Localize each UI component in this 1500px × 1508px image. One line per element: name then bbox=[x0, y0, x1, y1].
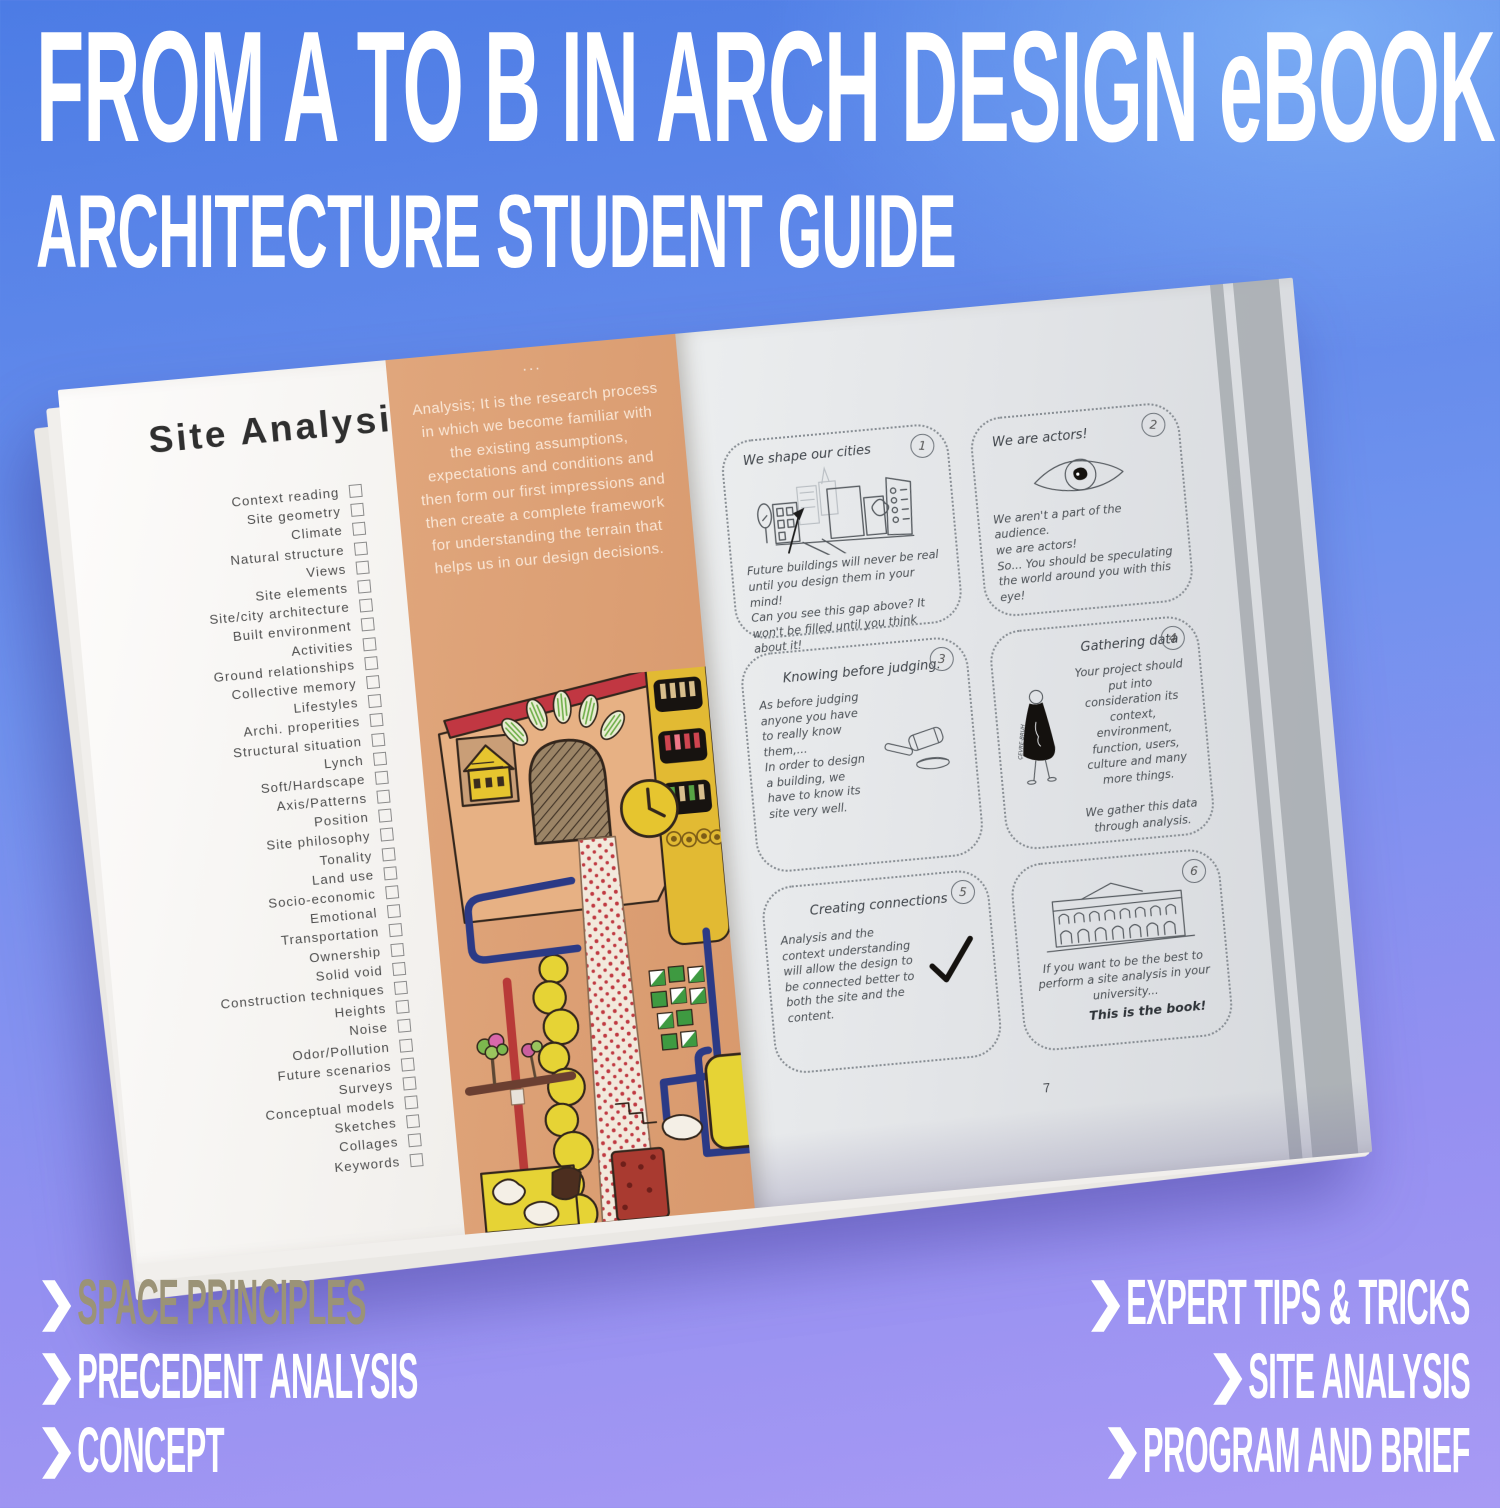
checkbox-icon bbox=[399, 1038, 413, 1052]
panel-body: As before judging anyone you have to rea… bbox=[759, 689, 879, 823]
book-left-page: Site Analysis Context readingSite geomet… bbox=[58, 334, 755, 1265]
feature-program-and-brief: ❯PROGRAM AND BRIEF bbox=[703, 1420, 1470, 1481]
checklist-label: Views bbox=[306, 561, 347, 580]
checkbox-icon bbox=[408, 1134, 422, 1148]
chevron-icon: ❯ bbox=[36, 1352, 77, 1399]
feature-label: SPACE PRINCIPLES bbox=[77, 1272, 366, 1333]
checkbox-icon bbox=[362, 637, 376, 651]
checkbox-icon bbox=[364, 656, 378, 670]
checkbox-icon bbox=[396, 1000, 410, 1014]
poster-title: FROM A TO B IN ARCH DESIGN eBOOK bbox=[36, 8, 1500, 166]
checkbox-icon bbox=[357, 579, 371, 593]
checkbox-icon bbox=[361, 618, 375, 632]
checkbox-icon bbox=[394, 981, 408, 995]
poster-title-text: FROM A TO B IN ARCH DESIGN eBOOK bbox=[36, 8, 1495, 166]
chevron-icon: ❯ bbox=[36, 1279, 77, 1326]
panel-gathering-data: 4 ÇEVRE-BRUH Gathering data Your project… bbox=[987, 614, 1216, 852]
gavel-sketch-icon bbox=[878, 714, 961, 778]
checkbox-icon bbox=[406, 1115, 420, 1129]
panel-we-shape-our-cities: 1 We shape our cities bbox=[719, 422, 964, 642]
chevron-icon: ❯ bbox=[1085, 1279, 1126, 1326]
panel-number-badge: 1 bbox=[910, 433, 935, 458]
checkbox-icon bbox=[387, 904, 401, 918]
feature-space-principles: ❯SPACE PRINCIPLES bbox=[36, 1272, 723, 1333]
checkbox-icon bbox=[354, 541, 368, 555]
open-book: Site Analysis Context readingSite geomet… bbox=[58, 278, 1372, 1265]
feature-label: CONCEPT bbox=[77, 1420, 224, 1481]
checkbox-icon bbox=[378, 809, 392, 823]
checkbox-icon bbox=[352, 522, 366, 536]
checkbox-icon bbox=[368, 694, 382, 708]
checkbox-icon bbox=[349, 484, 363, 498]
checkbox-icon bbox=[382, 847, 396, 861]
checkbox-icon bbox=[366, 675, 380, 689]
feature-concept: ❯CONCEPT bbox=[36, 1420, 428, 1481]
checkbox-icon bbox=[409, 1153, 423, 1167]
checkbox-icon bbox=[376, 790, 390, 804]
poster-subtitle-text: ARCHITECTURE STUDENT GUIDE bbox=[36, 180, 956, 284]
checklist-label: Lynch bbox=[323, 753, 364, 772]
university-building-sketch-icon bbox=[1039, 869, 1199, 959]
panel-creating-connections: 5 Creating connections Analysis and the … bbox=[760, 868, 1004, 1076]
feature-label: PRECEDENT ANALYSIS bbox=[77, 1346, 418, 1407]
page-title: Site Analysis bbox=[147, 396, 418, 462]
panel-knowing-before-judging: 3 Knowing before judging. As before judg… bbox=[739, 635, 986, 875]
checkbox-icon bbox=[402, 1076, 416, 1090]
checkbox-icon bbox=[356, 560, 370, 574]
checkmark-sketch-icon bbox=[920, 930, 981, 991]
checklist-label: Noise bbox=[349, 1020, 389, 1038]
feature-label: SITE ANALYSIS bbox=[1248, 1346, 1470, 1407]
chevron-icon: ❯ bbox=[1207, 1352, 1248, 1399]
site-checklist: Context readingSite geometryClimateNatur… bbox=[96, 481, 424, 1193]
checkbox-icon bbox=[404, 1095, 418, 1109]
cloaked-figure-sketch-icon: ÇEVRE-BRUH bbox=[1009, 686, 1075, 790]
panel-title: Knowing before judging. bbox=[782, 656, 952, 686]
checkbox-icon bbox=[371, 732, 385, 746]
checkbox-icon bbox=[359, 599, 373, 613]
poster-subtitle: ARCHITECTURE STUDENT GUIDE bbox=[36, 180, 1500, 284]
surreal-city-illustration bbox=[415, 666, 755, 1235]
feature-label: PROGRAM AND BRIEF bbox=[1143, 1420, 1470, 1481]
checkbox-icon bbox=[369, 713, 383, 727]
hero: FROM A TO B IN ARCH DESIGN eBOOK ARCHITE… bbox=[36, 8, 1500, 284]
panel-we-are-actors: 2 We are actors! We aren't a part of the… bbox=[968, 401, 1195, 619]
feature-site-analysis: ❯SITE ANALYSIS bbox=[922, 1346, 1470, 1407]
feature-expert-tips: ❯EXPERT TIPS & TRICKS bbox=[668, 1272, 1470, 1333]
checkbox-icon bbox=[389, 923, 403, 937]
panel-number-badge: 6 bbox=[1181, 858, 1206, 883]
feature-label: EXPERT TIPS & TRICKS bbox=[1126, 1272, 1470, 1333]
checklist-label: Keywords bbox=[334, 1154, 401, 1175]
city-skyline-sketch-icon bbox=[750, 455, 930, 562]
checkbox-icon bbox=[383, 866, 397, 880]
checklist-label: Climate bbox=[291, 523, 344, 543]
checkbox-icon bbox=[392, 962, 406, 976]
checkbox-icon bbox=[380, 828, 394, 842]
checkbox-icon bbox=[373, 751, 387, 765]
book-mockup: Site Analysis Context readingSite geomet… bbox=[58, 278, 1372, 1265]
checkbox-icon bbox=[385, 885, 399, 899]
panel-this-is-the-book: 6 bbox=[1009, 847, 1235, 1053]
comic-panels: 1 We shape our cities bbox=[719, 401, 1235, 1080]
feature-list-right: ❯EXPERT TIPS & TRICKS ❯SITE ANALYSIS ❯PR… bbox=[668, 1272, 1470, 1480]
checkbox-icon bbox=[397, 1019, 411, 1033]
eye-sketch-icon bbox=[1026, 444, 1130, 505]
chevron-icon: ❯ bbox=[36, 1426, 77, 1473]
panel-body: Your project should put into considerati… bbox=[1072, 656, 1200, 837]
checkbox-icon bbox=[375, 771, 389, 785]
page-number: 7 bbox=[1042, 1080, 1051, 1096]
panel-body: We aren't a part of the audience. we are… bbox=[992, 497, 1178, 606]
checkbox-icon bbox=[350, 503, 364, 517]
book-right-page: 1 We shape our cities bbox=[675, 278, 1372, 1209]
checkbox-icon bbox=[401, 1057, 415, 1071]
panel-title: We are actors! bbox=[991, 420, 1164, 451]
analysis-definition-text: Analysis; It is the research process in … bbox=[409, 377, 676, 581]
panel-body: Analysis and the context understanding w… bbox=[780, 922, 919, 1027]
chevron-icon: ❯ bbox=[1102, 1426, 1143, 1473]
checkbox-icon bbox=[390, 943, 404, 957]
